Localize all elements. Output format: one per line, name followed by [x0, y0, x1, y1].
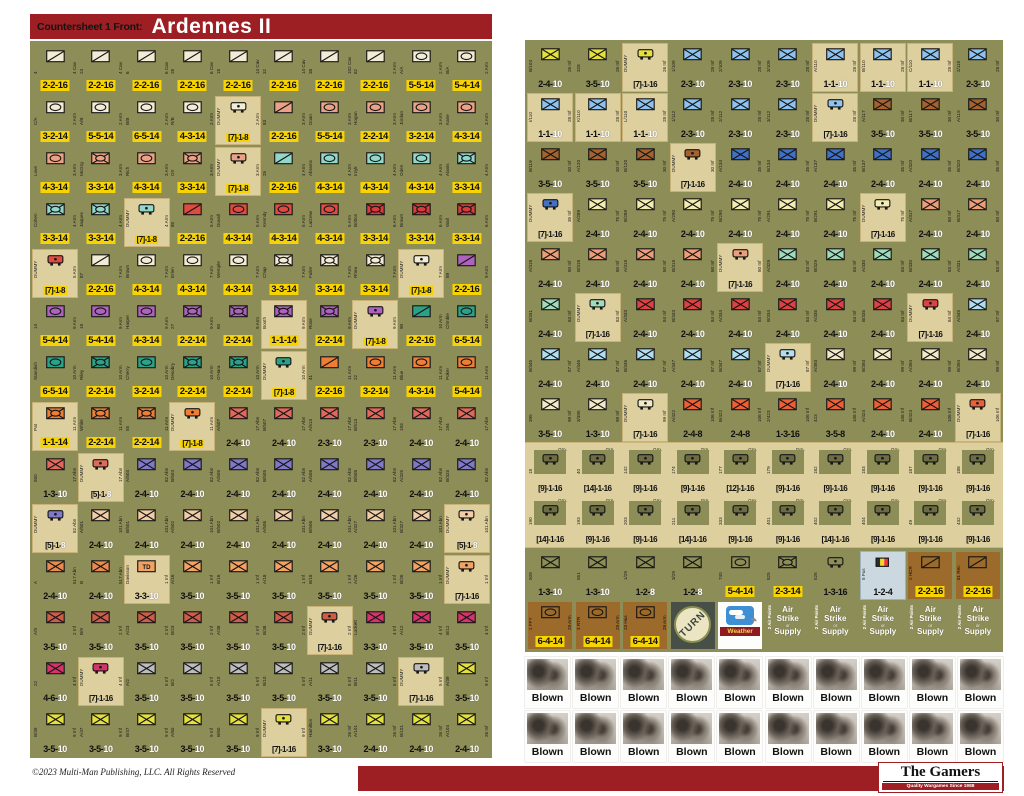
unit-counter[interactable]: 1/10928 Inf2-3-10 — [671, 44, 715, 91]
unit-counter[interactable]: 199 Arm5-4-14 — [79, 301, 123, 348]
blown-bridge-marker[interactable]: Blown — [958, 657, 1003, 708]
unit-counter[interactable]: A/29175 Inf2-4-10 — [766, 194, 810, 241]
unit-counter[interactable]: 211Grp.[14]-1-16 — [671, 497, 715, 547]
unit-counter[interactable]: A/50482 Abn2-4-10 — [125, 454, 169, 501]
unit-counter[interactable]: 190Grp.[14]-1-16 — [528, 497, 572, 547]
unit-counter[interactable]: A/34687 Inf2-4-10 — [576, 344, 620, 391]
unit-counter[interactable]: 179Grp.[9]-1-16 — [766, 446, 810, 496]
unit-counter[interactable]: 404Grp.[9]-1-16 — [861, 497, 905, 547]
unit-counter[interactable]: B/32035 Inf2-4-10 — [956, 144, 1000, 191]
unit-counter[interactable]: B/11028 Inf1-1-10 — [861, 44, 905, 91]
unit-counter[interactable]: B/12030 Inf3-5-10 — [623, 144, 667, 191]
unit-counter[interactable]: Chap7 Arm3-3-14 — [262, 250, 306, 297]
unit-counter[interactable]: 7405-4-14 — [718, 552, 762, 599]
unit-counter[interactable]: 286 Cav2-2-16 — [170, 46, 214, 93]
unit-counter[interactable]: Standish10 Arm6-5-14 — [33, 352, 77, 399]
unit-counter[interactable]: B/33584 Inf2-4-10 — [861, 294, 905, 341]
unit-counter[interactable]: B/10126 Inf2-4-10 — [399, 709, 443, 756]
unit-counter[interactable]: 182Grp.[9]-1-16 — [813, 446, 857, 496]
blown-bridge-marker[interactable]: Blown — [766, 657, 811, 708]
unit-counter[interactable]: 183Grp.[9]-1-16 — [861, 446, 905, 496]
dummy-counter[interactable]: DUMMY28 Inf[7]-1-16 — [813, 94, 857, 141]
unit-counter[interactable]: B/39499 Inf2-4-10 — [956, 344, 1000, 391]
unit-counter[interactable]: Davisson1 InfTD3-3-10 — [125, 556, 169, 603]
unit-counter[interactable]: A/327101 Abn2-4-10 — [353, 505, 397, 552]
unit-counter[interactable]: B/50482 Abn2-4-10 — [170, 454, 214, 501]
counter-values: 3-3-10 — [364, 642, 388, 652]
unit-counter[interactable]: 899 Arm2-2-16 — [445, 250, 489, 297]
dummy-counter[interactable]: DUMMY83 Inf[7]-1-16 — [576, 294, 620, 341]
dummy-counter[interactable]: DUMMY11 Arm[7]-1-8 — [170, 403, 214, 450]
unit-counter[interactable]: B/31980 Inf2-4-10 — [671, 244, 715, 291]
unit-counter[interactable]: B/327101 Abn2-4-10 — [399, 505, 443, 552]
unit-counter[interactable]: A/51317 Abn2-3-10 — [308, 403, 352, 450]
unit-counter[interactable]: 174Grp.[9]-1-16 — [671, 446, 715, 496]
unit-counter[interactable]: B/105 Inf3-5-10 — [262, 658, 306, 705]
unit-counter[interactable]: Irzyk4 Arm4-3-14 — [353, 148, 397, 195]
unit-counter[interactable]: 3214 Cav2-2-16 — [262, 46, 306, 93]
unit-counter[interactable]: A/50717 Abn2-4-10 — [216, 403, 260, 450]
unit-counter[interactable]: A/33083 Inf2-4-10 — [861, 244, 905, 291]
unit-counter[interactable]: B/479 Inf3-5-10 — [125, 709, 169, 756]
unit-counter[interactable]: Kenndy5 Arm4-3-14 — [262, 199, 306, 246]
unit-counter[interactable]: Riley10 Arm2-2-14 — [79, 352, 123, 399]
counter-values: 2-4-10 — [919, 379, 943, 389]
air-strike-supply-marker[interactable]: 2 Air PointsAirStrikeorSupply — [908, 602, 952, 649]
unit-counter[interactable]: 432Grp.[9]-1-16 — [956, 497, 1000, 547]
blown-bridge-marker[interactable]: Blown — [862, 711, 907, 762]
unit-counter[interactable]: B/31780 Inf2-4-10 — [956, 194, 1000, 241]
unit-counter[interactable]: A/11028 Inf1-1-10 — [813, 44, 857, 91]
unit-counter[interactable]: O'Hara10 Arm2-2-14 — [216, 352, 260, 399]
blown-bridge-marker[interactable]: Blown — [669, 711, 714, 762]
artillery-symbol-icon — [873, 504, 892, 522]
unit-counter[interactable]: A/232 Inf3-5-10 — [125, 607, 169, 654]
unit-counter[interactable]: B/28975 Inf2-4-10 — [623, 194, 667, 241]
unit-counter[interactable]: Erlen7 Arm4-3-14 — [170, 250, 214, 297]
dummy-counter[interactable]: DUMMY99 Inf[7]-1-16 — [623, 394, 667, 441]
unit-counter[interactable]: A/33183 Inf2-4-10 — [956, 244, 1000, 291]
unit-counter[interactable]: Orr3 Arm3-3-14 — [170, 148, 214, 195]
unit-counter[interactable]: A/382 Inf3-5-10 — [216, 607, 260, 654]
unit-counter[interactable]: McGrg3 Arm3-3-14 — [79, 148, 123, 195]
unit-counter[interactable]: 855 Arm2-2-16 — [170, 199, 214, 246]
unit-counter[interactable]: A/161 Inf3-5-10 — [170, 556, 214, 603]
unit-counter[interactable]: 3/10928 Inf2-3-10 — [766, 44, 810, 91]
unit-counter[interactable]: Rose9 Arm2-2-14 — [308, 301, 352, 348]
blown-bridge-marker[interactable]: Blown — [717, 657, 762, 708]
unit-counter[interactable]: B/11730 Inf3-5-10 — [908, 94, 952, 141]
unit-symbol-icon — [528, 606, 572, 619]
unit-counter[interactable]: K/11028 Inf1-1-10 — [576, 94, 620, 141]
unit-counter[interactable]: 19417 Abn2-4-10 — [445, 403, 489, 450]
unit-counter[interactable]: Love3 Arm4-3-14 — [33, 148, 77, 195]
unit-counter[interactable]: 44 Cav2-2-16 — [33, 46, 77, 93]
unit-counter[interactable]: 203Grp.[9]-1-16 — [623, 497, 667, 547]
unit-counter[interactable]: 32826 Inf3-5-10 — [576, 44, 620, 91]
unit-counter[interactable]: A/12030 Inf3-5-10 — [576, 144, 620, 191]
dummy-counter[interactable]: DUMMY106 Inf[7]-1-16 — [956, 394, 1000, 441]
blown-bridge-marker[interactable]: Blown — [958, 711, 1003, 762]
unit-counter[interactable]: 23 Hus29 Arm6-4-14 — [623, 602, 667, 649]
unit-counter[interactable]: 1/291-2-8 — [623, 552, 667, 599]
unit-counter[interactable]: 244 Cav2-2-16 — [79, 46, 123, 93]
dummy-counter[interactable]: DUMMY26 Inf[7]-1-16 — [623, 44, 667, 91]
dummy-counter[interactable]: DUMMY17 Abn[5]-1-8 — [79, 454, 123, 501]
unit-counter[interactable]: 877 Arm2-2-16 — [79, 250, 123, 297]
unit-counter[interactable]: R/B2 Arm4-3-14 — [170, 97, 214, 144]
unit-counter[interactable]: 39599 Inf3-5-10 — [528, 394, 572, 441]
unit-counter[interactable]: 38102 Cav2-2-16 — [308, 46, 352, 93]
dummy-counter[interactable]: DUMMY101 Abn[5]-1-8 — [445, 505, 489, 552]
dummy-counter[interactable]: DUMMY2 Arm[7]-1-8 — [216, 97, 260, 144]
unit-counter[interactable]: Wall6 Arm3-3-14 — [445, 199, 489, 246]
blown-bridge-marker[interactable]: Blown — [910, 711, 955, 762]
unit-counter[interactable]: Oden4 Arm4-3-14 — [399, 148, 443, 195]
unit-counter[interactable]: 5511 Arm2-2-14 — [125, 403, 169, 450]
unit-counter[interactable]: 5261-3-16 — [813, 552, 857, 599]
unit-counter[interactable]: Poker11 Arm5-4-14 — [445, 352, 489, 399]
blown-bridge-marker[interactable]: Blown — [573, 711, 618, 762]
unit-counter[interactable]: B/13435 Inf2-4-10 — [766, 144, 810, 191]
unit-symbol-icon — [528, 398, 572, 411]
blown-bridge-marker[interactable]: Blown — [717, 711, 762, 762]
blown-bridge-marker[interactable]: Blown — [862, 657, 907, 708]
unit-counter[interactable]: 3/291-2-8 — [671, 552, 715, 599]
unit-counter[interactable]: A/39399 Inf2-4-10 — [813, 344, 857, 391]
unit-counter[interactable]: B/11930 Inf3-5-10 — [528, 144, 572, 191]
unit-counter[interactable]: 2/11028 Inf2-3-10 — [956, 44, 1000, 91]
unit-counter[interactable]: A/11730 Inf3-5-10 — [861, 94, 905, 141]
unit-counter[interactable]: A/33484 Inf2-4-10 — [718, 294, 762, 341]
unit-counter[interactable]: 833 Arm2-2-16 — [262, 97, 306, 144]
unit-counter[interactable]: A/124 Inf3-5-10 — [399, 607, 443, 654]
unit-counter[interactable]: B/232 Inf3-5-10 — [170, 607, 214, 654]
unit-counter[interactable]: B/33384 Inf2-4-10 — [671, 294, 715, 341]
unit-counter[interactable]: A/33384 Inf2-4-10 — [623, 294, 667, 341]
air-strike-supply-marker[interactable]: 2 Air PointsAirStrikeorSupply — [956, 602, 1000, 649]
unit-counter[interactable]: A/31880 Inf2-4-10 — [528, 244, 572, 291]
unit-counter[interactable]: A/479 Inf3-5-10 — [79, 709, 123, 756]
unit-counter[interactable]: A/13735 Inf2-4-10 — [813, 144, 857, 191]
dummy-counter[interactable]: DUMMY87 Inf[7]-1-16 — [766, 344, 810, 391]
unit-counter[interactable]: 3/39599 Inf1-3-10 — [576, 394, 620, 441]
unit-counter[interactable]: 3/11228 Inf2-3-10 — [766, 94, 810, 141]
unit-counter[interactable]: 224 Inf4-6-10 — [33, 658, 77, 705]
unit-symbol-icon — [125, 254, 169, 267]
unit-counter[interactable]: B/32983 Inf2-4-10 — [813, 244, 857, 291]
unit-counter[interactable]: B/32582 Abn2-4-10 — [445, 454, 489, 501]
unit-counter[interactable]: 187Grp.[9]-1-16 — [908, 446, 952, 496]
blown-label: Blown — [717, 692, 762, 704]
unit-counter[interactable]: Cherry10 Arm3-2-14 — [125, 352, 169, 399]
dummy-counter[interactable]: DUMMY35 Inf[7]-1-16 — [528, 194, 572, 241]
unit-counter[interactable]: B/34687 Inf2-4-10 — [623, 344, 667, 391]
blown-bridge-marker[interactable]: Blown — [621, 711, 666, 762]
unit-counter[interactable]: A/31780 Inf2-4-10 — [908, 194, 952, 241]
unit-counter[interactable]: B/39399 Inf2-4-10 — [861, 344, 905, 391]
unit-counter[interactable]: Jaques4 Arm3-3-14 — [79, 199, 123, 246]
unit-counter[interactable]: A/424106 Inf2-4-10 — [861, 394, 905, 441]
blown-bridge-marker[interactable]: Blown — [573, 657, 618, 708]
unit-counter[interactable]: B/33083 Inf2-4-10 — [908, 244, 952, 291]
unit-counter[interactable]: Duvall5 Arm4-3-14 — [216, 199, 260, 246]
unit-counter[interactable]: Brown6 Arm3-3-14 — [399, 199, 443, 246]
dummy-counter[interactable]: DUMMY1 Inf[7]-1-16 — [445, 556, 489, 603]
counter-values: 3-5-10 — [364, 693, 388, 703]
unit-counter[interactable]: Rich3 Arm4-3-14 — [125, 148, 169, 195]
air-points-label: 2 Air Points — [767, 605, 772, 629]
unit-counter[interactable]: A/B2 Arm5-5-14 — [79, 97, 123, 144]
unit-counter[interactable]: A/506101 Abn2-4-10 — [262, 505, 306, 552]
unit-counter[interactable]: Lockett4 Inf3-3-10 — [353, 607, 397, 654]
unit-counter[interactable]: Pat11 Arm1-1-14 — [33, 403, 77, 450]
svg-text:TD: TD — [142, 564, 151, 571]
unit-symbol-icon — [399, 101, 443, 114]
unit-counter[interactable]: Fuller7 Arm3-3-14 — [308, 250, 352, 297]
unit-counter[interactable]: I/11028 Inf1-1-10 — [528, 94, 572, 141]
counter-values: 2-4-10 — [272, 489, 296, 499]
unit-counter[interactable]: A/261 Inf3-5-10 — [353, 556, 397, 603]
unit-counter[interactable]: A/502101 Abn2-4-10 — [170, 505, 214, 552]
unit-counter[interactable]: L/11028 Inf1-1-10 — [623, 94, 667, 141]
unit-counter[interactable]: 609 Arm2-2-14 — [216, 301, 260, 348]
unit-counter[interactable]: A/50582 Abn2-4-10 — [216, 454, 260, 501]
unit-counter[interactable]: 49Grp.[9]-1-16 — [908, 497, 952, 547]
counter-values: 3-2-14 — [40, 131, 69, 142]
unit-counter[interactable]: A/10126 Inf2-4-10 — [353, 709, 397, 756]
unit-counter[interactable]: C/11028 Inf1-1-10 — [908, 44, 952, 91]
unit-counter[interactable]: B/10426 Inf2-4-10 — [528, 44, 572, 91]
dummy-counter[interactable]: DUMMY82 Abn[5]-1-8 — [33, 505, 77, 552]
unit-counter[interactable]: B/422106 Inf2-4-8 — [718, 394, 762, 441]
unit-counter[interactable]: A/29075 Inf2-4-10 — [671, 194, 715, 241]
unit-counter[interactable]: B/115 Inf3-5-10 — [353, 658, 397, 705]
unit-counter[interactable]: 177Grp.[12]-1-16 — [718, 446, 762, 496]
unit-counter[interactable]: Abrams4 Arm4-3-14 — [308, 148, 352, 195]
unit-counter[interactable]: Chmble10 Arm6-5-14 — [445, 301, 489, 348]
dummy-counter[interactable]: DUMMY75 Inf[7]-1-16 — [861, 194, 905, 241]
unit-counter[interactable]: A/13435 Inf2-4-10 — [718, 144, 762, 191]
unit-counter[interactable]: A/422106 Inf2-4-8 — [671, 394, 715, 441]
unit-counter[interactable]: B/609 Inf3-5-10 — [216, 709, 260, 756]
unit-counter[interactable]: White11 Arm2-2-14 — [79, 403, 123, 450]
blown-bridge-marker[interactable]: Blown — [766, 711, 811, 762]
unit-counter[interactable]: 5091-3-10 — [528, 552, 572, 599]
unit-counter[interactable]: 423106 Inf3-5-8 — [813, 394, 857, 441]
unit-counter[interactable]: A/34787 Inf2-4-10 — [671, 344, 715, 391]
unit-counter[interactable]: A/50882 Abn2-4-10 — [308, 454, 352, 501]
unit-counter[interactable]: A/181 Inf3-5-10 — [262, 556, 306, 603]
unit-counter[interactable]: A/34587 Inf2-4-10 — [956, 294, 1000, 341]
unit-counter[interactable]: Alanis4 Arm3-3-14 — [445, 148, 489, 195]
unit-counter[interactable]: A/32983 Inf2-4-10 — [766, 244, 810, 291]
unit-counter[interactable]: 2/10928 Inf2-3-10 — [718, 44, 762, 91]
air-strike-supply-marker[interactable]: 2 Air PointsAirStrikeorSupply — [861, 602, 905, 649]
unit-counter[interactable]: Doan3 Arm5-5-14 — [308, 97, 352, 144]
dummy-counter[interactable]: DUMMY7 Arm[7]-1-8 — [399, 250, 443, 297]
unit-counter[interactable]: A/A2 Arm5-5-14 — [399, 46, 443, 93]
dummy-counter[interactable]: DUMMY5 Inf[7]-1-16 — [399, 658, 443, 705]
unit-counter[interactable]: A/33584 Inf2-4-10 — [813, 294, 857, 341]
unit-counter[interactable]: B/181 Inf3-5-10 — [308, 556, 352, 603]
unit-counter[interactable]: B/31880 Inf2-4-10 — [576, 244, 620, 291]
dummy-counter[interactable]: DUMMY80 Inf[7]-1-16 — [718, 244, 762, 291]
unit-counter[interactable]: B/424106 Inf2-4-10 — [908, 394, 952, 441]
unit-counter[interactable]: 401Grp.[9]-1-16 — [766, 497, 810, 547]
unit-counter[interactable]: B/A2 Arm5-4-14 — [445, 46, 489, 93]
unit-counter[interactable]: 4111 Arm2-2-16 — [308, 352, 352, 399]
unit-counter[interactable]: B517 Abn2-4-10 — [79, 556, 123, 603]
unit-counter[interactable]: B/50717 Abn2-4-10 — [262, 403, 306, 450]
unit-counter[interactable]: 40Grp.[14]-1-16 — [576, 446, 620, 496]
blown-bridge-marker[interactable]: Blown — [910, 657, 955, 708]
unit-counter[interactable]: 333Grp.[9]-1-16 — [718, 497, 762, 547]
unit-counter[interactable]: A/399 Inf3-5-10 — [445, 658, 489, 705]
unit-counter[interactable]: Hamilton26 Inf3-3-10 — [308, 709, 352, 756]
unit-counter[interactable]: A/105 Inf3-5-10 — [216, 658, 260, 705]
unit-counter[interactable]: B/382 Inf3-5-10 — [262, 607, 306, 654]
dummy-counter[interactable]: DUMMY4 Inf[7]-1-16 — [79, 658, 123, 705]
unit-counter[interactable]: 254 Arm2-2-16 — [262, 148, 306, 195]
blown-bridge-marker[interactable]: Blown — [669, 657, 714, 708]
unit-counter[interactable]: B/25 Inf3-5-10 — [170, 658, 214, 705]
unit-counter[interactable]: Rhea7 Arm3-3-14 — [353, 250, 397, 297]
unit-counter[interactable]: B/161 Inf3-5-10 — [216, 556, 260, 603]
unit-counter[interactable]: Hogan3 Arm2-2-14 — [353, 97, 397, 144]
unit-counter[interactable]: 19317 Abn2-4-10 — [399, 403, 443, 450]
unit-counter[interactable]: B/33183 Inf2-4-10 — [528, 294, 572, 341]
unit-counter[interactable]: C/A2 Arm3-2-14 — [33, 97, 77, 144]
unit-counter[interactable]: 193Grp.[9]-1-16 — [576, 497, 620, 547]
unit-counter[interactable]: A/609 Inf3-5-10 — [170, 709, 214, 756]
unit-counter[interactable]: 142Grp.[9]-1-16 — [623, 446, 667, 496]
counter-values: [9]-1-16 — [871, 484, 895, 493]
publisher-logo-title: The Gamers — [883, 764, 998, 782]
unit-counter[interactable]: Britton6 Arm3-3-14 — [353, 199, 397, 246]
unit-counter[interactable]: B/506101 Abn2-4-10 — [308, 505, 352, 552]
dummy-counter[interactable]: DUMMY84 Inf[7]-1-16 — [908, 294, 952, 341]
turn-marker[interactable]: TURN — [671, 602, 715, 649]
unit-counter[interactable]: Harper9 Arm4-3-14 — [125, 301, 169, 348]
dummy-counter[interactable]: DUMMY5 Arm[7]-1-8 — [33, 250, 77, 297]
dummy-counter[interactable]: DUMMY30 Inf[7]-1-16 — [671, 144, 715, 191]
unit-counter[interactable]: A/32035 Inf2-4-10 — [908, 144, 952, 191]
unit-counter[interactable]: Blue11 Arm4-3-14 — [399, 352, 443, 399]
unit-counter[interactable]: 5511-3-10 — [576, 552, 620, 599]
unit-counter[interactable]: B/50882 Abn2-4-10 — [353, 454, 397, 501]
unit-counter[interactable]: 2/423106 Inf1-3-16 — [766, 394, 810, 441]
unit-counter[interactable]: B/51317 Abn2-3-10 — [353, 403, 397, 450]
unit-counter[interactable]: B/29175 Inf2-4-10 — [813, 194, 857, 241]
unit-counter[interactable]: B/29075 Inf2-4-10 — [718, 194, 762, 241]
unit-counter[interactable]: 8252-3-14 — [766, 552, 810, 599]
blown-bridge-marker[interactable]: Blown — [525, 657, 570, 708]
dummy-counter[interactable]: DUMMY2 Inf[7]-1-16 — [308, 607, 352, 654]
unit-counter[interactable]: 2211 Arm3-2-14 — [353, 352, 397, 399]
weather-marker[interactable]: ☂Weather — [718, 602, 762, 649]
unit-counter[interactable]: 61 Rec2-2-16 — [956, 552, 1000, 599]
unit-counter[interactable]: 66 Cav2-2-16 — [125, 46, 169, 93]
unit-counter[interactable]: A/32582 Abn2-4-10 — [399, 454, 443, 501]
unit-counter[interactable]: A/11930 Inf3-5-10 — [956, 94, 1000, 141]
dummy-counter[interactable]: DUMMY4 Arm[7]-1-8 — [125, 199, 169, 246]
unit-counter[interactable]: B/261 Inf3-5-10 — [399, 556, 443, 603]
dummy-counter[interactable]: DUMMY10 Arm[7]-1-8 — [262, 352, 306, 399]
unit-counter[interactable]: Jordan3 Arm3-2-14 — [399, 97, 443, 144]
counter-values: [9]-1-16 — [823, 484, 847, 493]
blown-bridge-marker[interactable]: Blown — [621, 657, 666, 708]
unit-counter[interactable]: 1814 Cav2-2-16 — [216, 46, 260, 93]
unit-counter[interactable]: Wemple7 Arm4-3-14 — [216, 250, 260, 297]
unit-counter[interactable]: A517 Abn2-4-10 — [33, 556, 77, 603]
unit-counter[interactable]: B/501101 Abn2-4-10 — [125, 505, 169, 552]
unit-counter[interactable]: A/115 Inf3-5-10 — [308, 658, 352, 705]
unit-counter[interactable]: 5 Fus1-2-4 — [861, 552, 905, 599]
unit-counter[interactable]: B/50582 Abn2-4-10 — [262, 454, 306, 501]
unit-counter[interactable]: B/33484 Inf2-4-10 — [766, 294, 810, 341]
unit-counter[interactable]: Brown7 Arm4-3-14 — [125, 250, 169, 297]
unit-counter[interactable]: B/34587 Inf2-4-10 — [528, 344, 572, 391]
unit-counter[interactable]: Kane3 Arm4-3-14 — [445, 97, 489, 144]
unit-counter[interactable]: 18Grp.[9]-1-16 — [528, 446, 572, 496]
unit-counter[interactable]: 2/11228 Inf2-3-10 — [718, 94, 762, 141]
unit-counter[interactable]: Cohen4 Arm3-3-14 — [33, 199, 77, 246]
unit-counter[interactable]: Booth9 Arm1-1-14 — [262, 301, 306, 348]
unit-counter[interactable]: 188Grp.[9]-1-16 — [956, 446, 1000, 496]
air-strike-supply-marker[interactable]: 2 Air PointsAirStrikeorSupply — [766, 602, 810, 649]
unit-counter[interactable]: A/31980 Inf2-4-10 — [623, 244, 667, 291]
unit-counter[interactable]: B/B2 Arm6-5-14 — [125, 97, 169, 144]
unit-counter[interactable]: B/124 Inf3-5-10 — [445, 607, 489, 654]
unit-counter[interactable]: A/10426 Inf2-4-10 — [445, 709, 489, 756]
unit-counter[interactable]: 9010 Arm2-2-16 — [399, 301, 443, 348]
unit-counter[interactable]: A/92 Inf3-5-10 — [33, 607, 77, 654]
unit-counter[interactable]: 822 Arm2-2-16 — [353, 46, 397, 93]
dummy-counter[interactable]: DUMMY3 Arm[7]-1-8 — [216, 148, 260, 195]
air-strike-supply-marker[interactable]: 2 Air PointsAirStrikeorSupply — [813, 602, 857, 649]
unit-counter[interactable]: A/501101 Abn2-4-10 — [79, 505, 123, 552]
unit-counter[interactable]: 3 RTR29 Arm6-4-14 — [576, 602, 620, 649]
unit-counter[interactable]: B/13735 Inf2-4-10 — [861, 144, 905, 191]
unit-counter[interactable]: 2 HCR2-2-16 — [908, 552, 952, 599]
explosion-photo — [768, 659, 809, 690]
blown-bridge-marker[interactable]: Blown — [525, 711, 570, 762]
unit-counter[interactable]: B/34787 Inf2-4-10 — [718, 344, 762, 391]
blown-bridge-marker[interactable]: Blown — [814, 711, 859, 762]
unit-counter[interactable]: B/92 Inf3-5-10 — [79, 607, 123, 654]
unit-counter[interactable]: Desobry10 Arm2-2-14 — [170, 352, 214, 399]
dummy-counter[interactable]: DUMMY9 Arm[7]-1-8 — [353, 301, 397, 348]
unit-counter[interactable]: 2 FFY29 Arm6-4-14 — [528, 602, 572, 649]
unit-counter[interactable]: B/399 Inf3-5-10 — [33, 709, 77, 756]
unit-counter[interactable]: 402Grp.[14]-1-16 — [813, 497, 857, 547]
unit-counter[interactable]: LaGrew5 Arm4-3-14 — [308, 199, 352, 246]
unit-counter[interactable]: 1/11228 Inf2-3-10 — [671, 94, 715, 141]
counter-values: 2-4-10 — [633, 379, 657, 389]
unit-counter[interactable]: A/25 Inf3-5-10 — [125, 658, 169, 705]
explosion-photo — [527, 713, 568, 744]
unit-counter[interactable]: B/502101 Abn2-4-10 — [216, 505, 260, 552]
blown-bridge-marker[interactable]: Blown — [814, 657, 859, 708]
dummy-counter[interactable]: DUMMY9 Inf[7]-1-16 — [262, 709, 306, 756]
unit-counter[interactable]: 149 Arm5-4-14 — [33, 301, 77, 348]
unit-counter[interactable]: A/28975 Inf2-4-10 — [576, 194, 620, 241]
counter-values: [14]-1-16 — [584, 484, 612, 493]
unit-counter[interactable]: 55017 Abn1-3-10 — [33, 454, 77, 501]
unit-counter[interactable]: 279 Arm2-2-14 — [170, 301, 214, 348]
unit-counter[interactable]: A/39499 Inf2-4-10 — [908, 344, 952, 391]
